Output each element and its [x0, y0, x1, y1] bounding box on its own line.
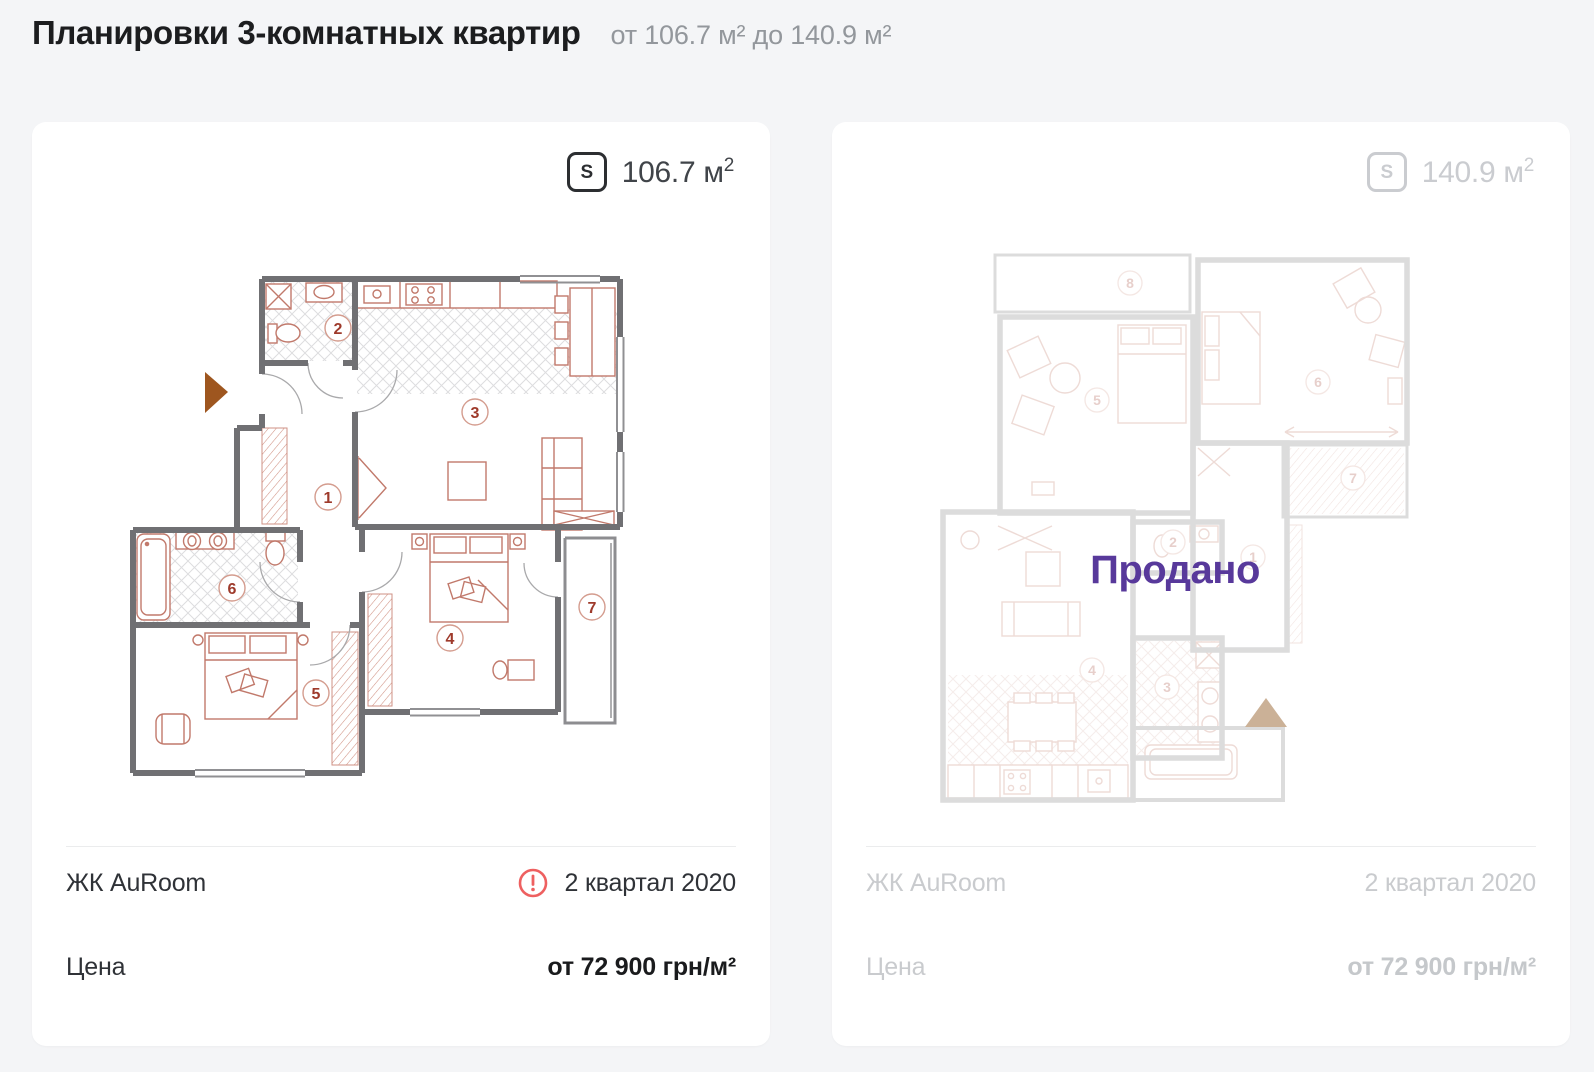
room-number: 5 [1093, 392, 1101, 408]
floor-plan-faded[interactable]: 1 2 3 4 5 6 7 8 [940, 250, 1410, 815]
area-icon: S [1367, 152, 1407, 192]
price-label: Цена [66, 953, 125, 982]
room-number: 2 [334, 321, 343, 338]
complex-name: ЖК AuRoom [66, 869, 206, 898]
price-label: Цена [866, 953, 925, 982]
price-value: от 72 900 грн/м² [547, 953, 736, 982]
sold-badge: Продано [940, 548, 1410, 593]
divider [66, 846, 736, 847]
room-number: 7 [588, 600, 597, 617]
entrance-arrow-icon [1245, 698, 1287, 727]
completion-term: 2 квартал 2020 [1365, 869, 1536, 898]
faded-plan: 1 2 3 4 5 6 7 8 [943, 255, 1407, 800]
page-header: Планировки 3-комнатных квартир от 106.7 … [32, 14, 891, 52]
room-number: 1 [324, 490, 333, 507]
complex-name: ЖК AuRoom [866, 869, 1006, 898]
floor-plan-svg: 1 2 3 4 5 6 7 8 [940, 250, 1410, 810]
room-number: 4 [1088, 662, 1096, 678]
room-number: 6 [1314, 374, 1322, 390]
area-value: 140.9 м2 [1422, 155, 1534, 190]
completion-term: 2 квартал 2020 [565, 869, 736, 898]
floor-plan-svg: 1 2 3 4 5 6 7 [110, 262, 680, 792]
apartment-card-available[interactable]: S 106.7 м2 [32, 122, 770, 1046]
price-value: от 72 900 грн/м² [1347, 953, 1536, 982]
area-value: 106.7 м2 [622, 155, 734, 190]
room-number: 4 [446, 631, 455, 648]
area-icon: S [567, 152, 607, 192]
page-title: Планировки 3-комнатных квартир [32, 14, 581, 52]
area-badge: S 106.7 м2 [567, 152, 734, 192]
apartment-card-sold[interactable]: S 140.9 м2 [832, 122, 1570, 1046]
room-number: 3 [471, 405, 480, 422]
room-number: 6 [228, 581, 237, 598]
entrance-arrow-icon [205, 372, 228, 413]
divider [866, 846, 1536, 847]
page-subtitle: от 106.7 м² до 140.9 м² [611, 20, 892, 51]
room-number: 7 [1349, 470, 1357, 486]
plan-cards: S 106.7 м2 [32, 122, 1570, 1046]
room-number: 8 [1126, 275, 1134, 291]
room-number: 5 [312, 686, 321, 703]
room-number: 3 [1163, 679, 1171, 695]
floor-plan[interactable]: 1 2 3 4 5 6 7 [110, 262, 680, 797]
area-badge: S 140.9 м2 [1367, 152, 1534, 192]
warning-icon [518, 868, 548, 898]
